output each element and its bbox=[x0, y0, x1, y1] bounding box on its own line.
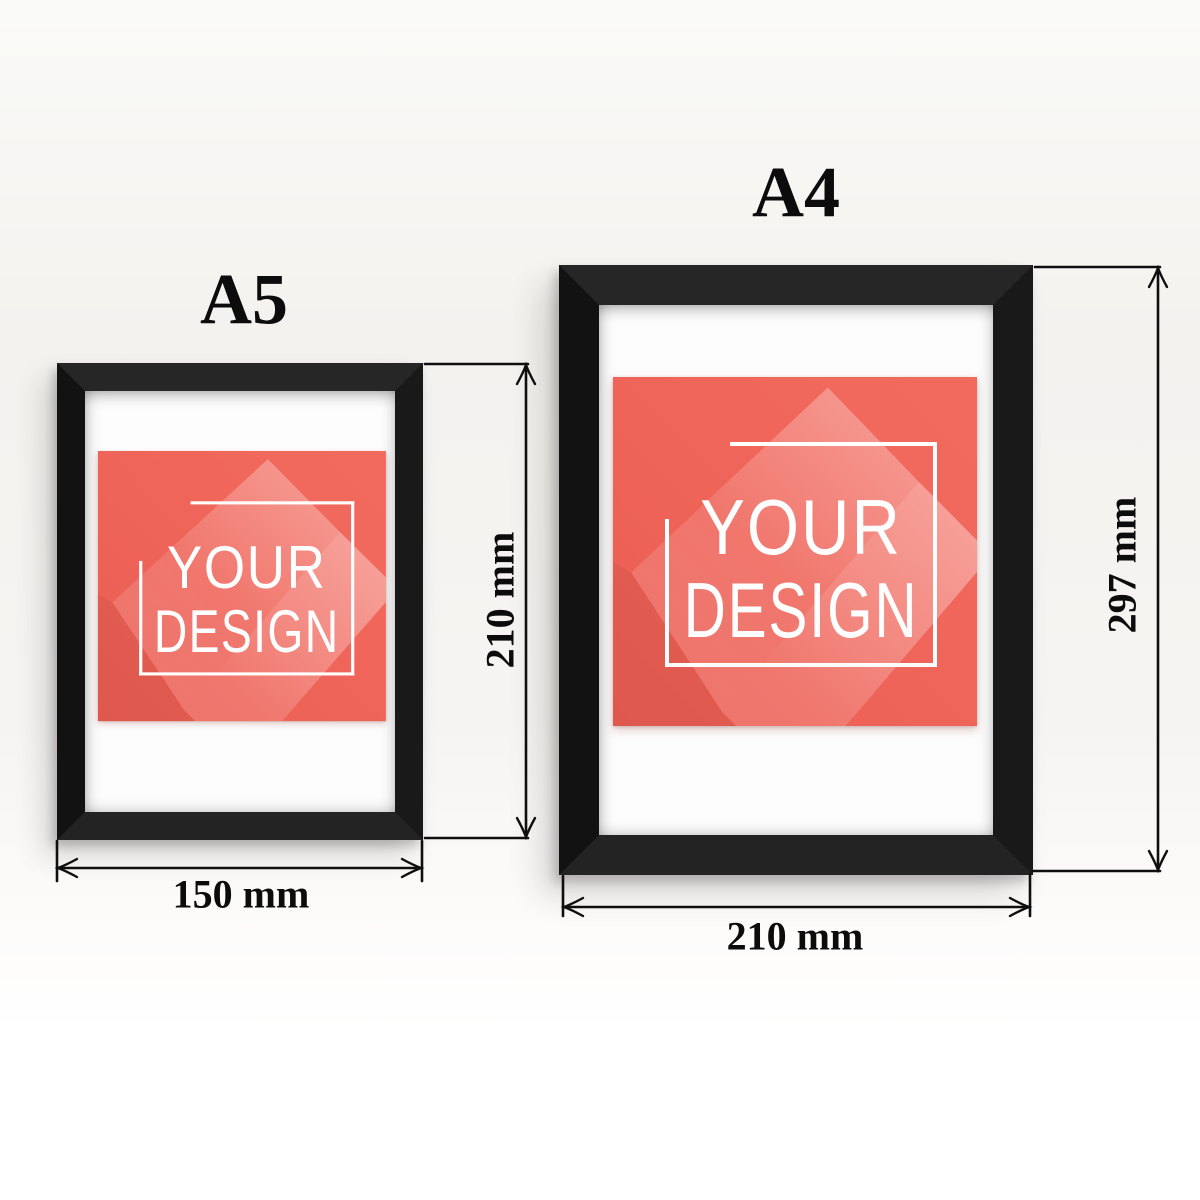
frame-size-comparison-scene: YOUR DESIGN YOUR bbox=[0, 0, 1200, 1200]
dimension-annotations bbox=[0, 0, 1200, 1200]
a5-width-dimension bbox=[57, 841, 422, 881]
a4-height-dimension bbox=[1033, 267, 1167, 871]
a4-width-dimension bbox=[563, 874, 1030, 916]
a5-height-dimension bbox=[425, 364, 535, 838]
